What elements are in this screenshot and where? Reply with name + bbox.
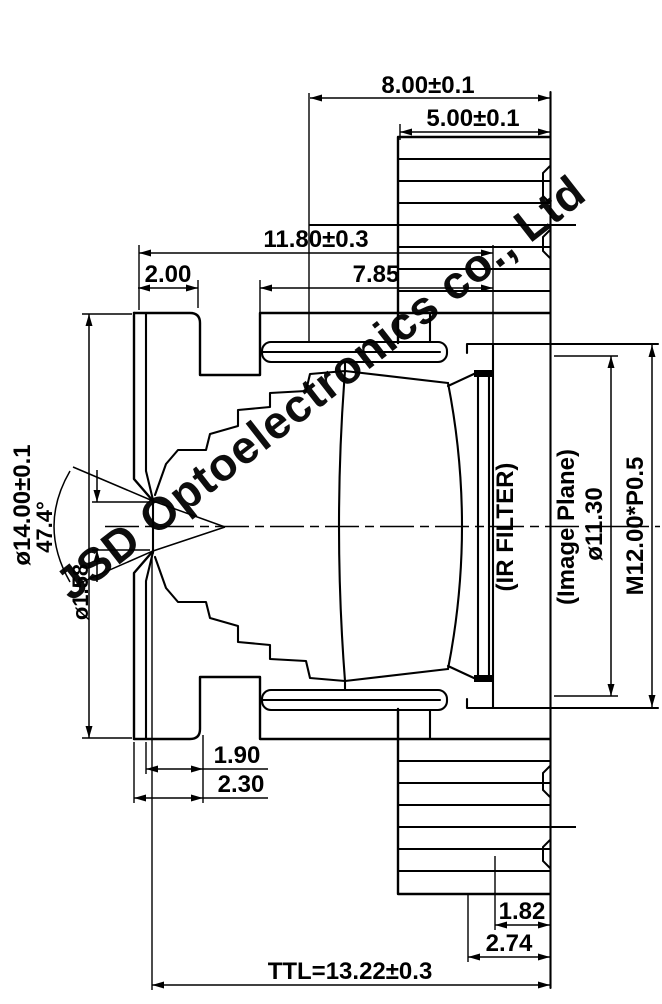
dim-2.74: 2.74 [486, 930, 533, 957]
dim-7.85: 7.85 [353, 261, 400, 288]
dim-1.90: 1.90 [214, 742, 261, 769]
dim-5.00: 5.00±0.1 [426, 105, 519, 132]
dim-2.30: 2.30 [218, 771, 265, 798]
dim-11.80: 11.80±0.3 [263, 226, 368, 253]
dim-1.82: 1.82 [499, 898, 546, 925]
dim-thread-m12: M12.00*P0.5 [622, 457, 649, 596]
dim-8.00: 8.00±0.1 [381, 72, 474, 99]
thread-section-bottom [398, 709, 576, 894]
label-image-plane: (Image Plane) [553, 449, 580, 605]
label-ir-filter: (IR FILTER) [492, 463, 519, 592]
lens-drawing-canvas: JSD Optoelectronics co., Ltd [0, 0, 662, 1004]
technical-drawing-svg: JSD Optoelectronics co., Ltd [0, 0, 662, 1004]
dim-2.00: 2.00 [145, 261, 192, 288]
dim-ttl: TTL=13.22±0.3 [268, 958, 433, 985]
dim-diameter-11.30: ø11.30 [581, 487, 608, 560]
dim-angle-47.4: 47.4° [32, 501, 57, 553]
dim-diameter-1.58: ø1.58 [68, 564, 93, 620]
